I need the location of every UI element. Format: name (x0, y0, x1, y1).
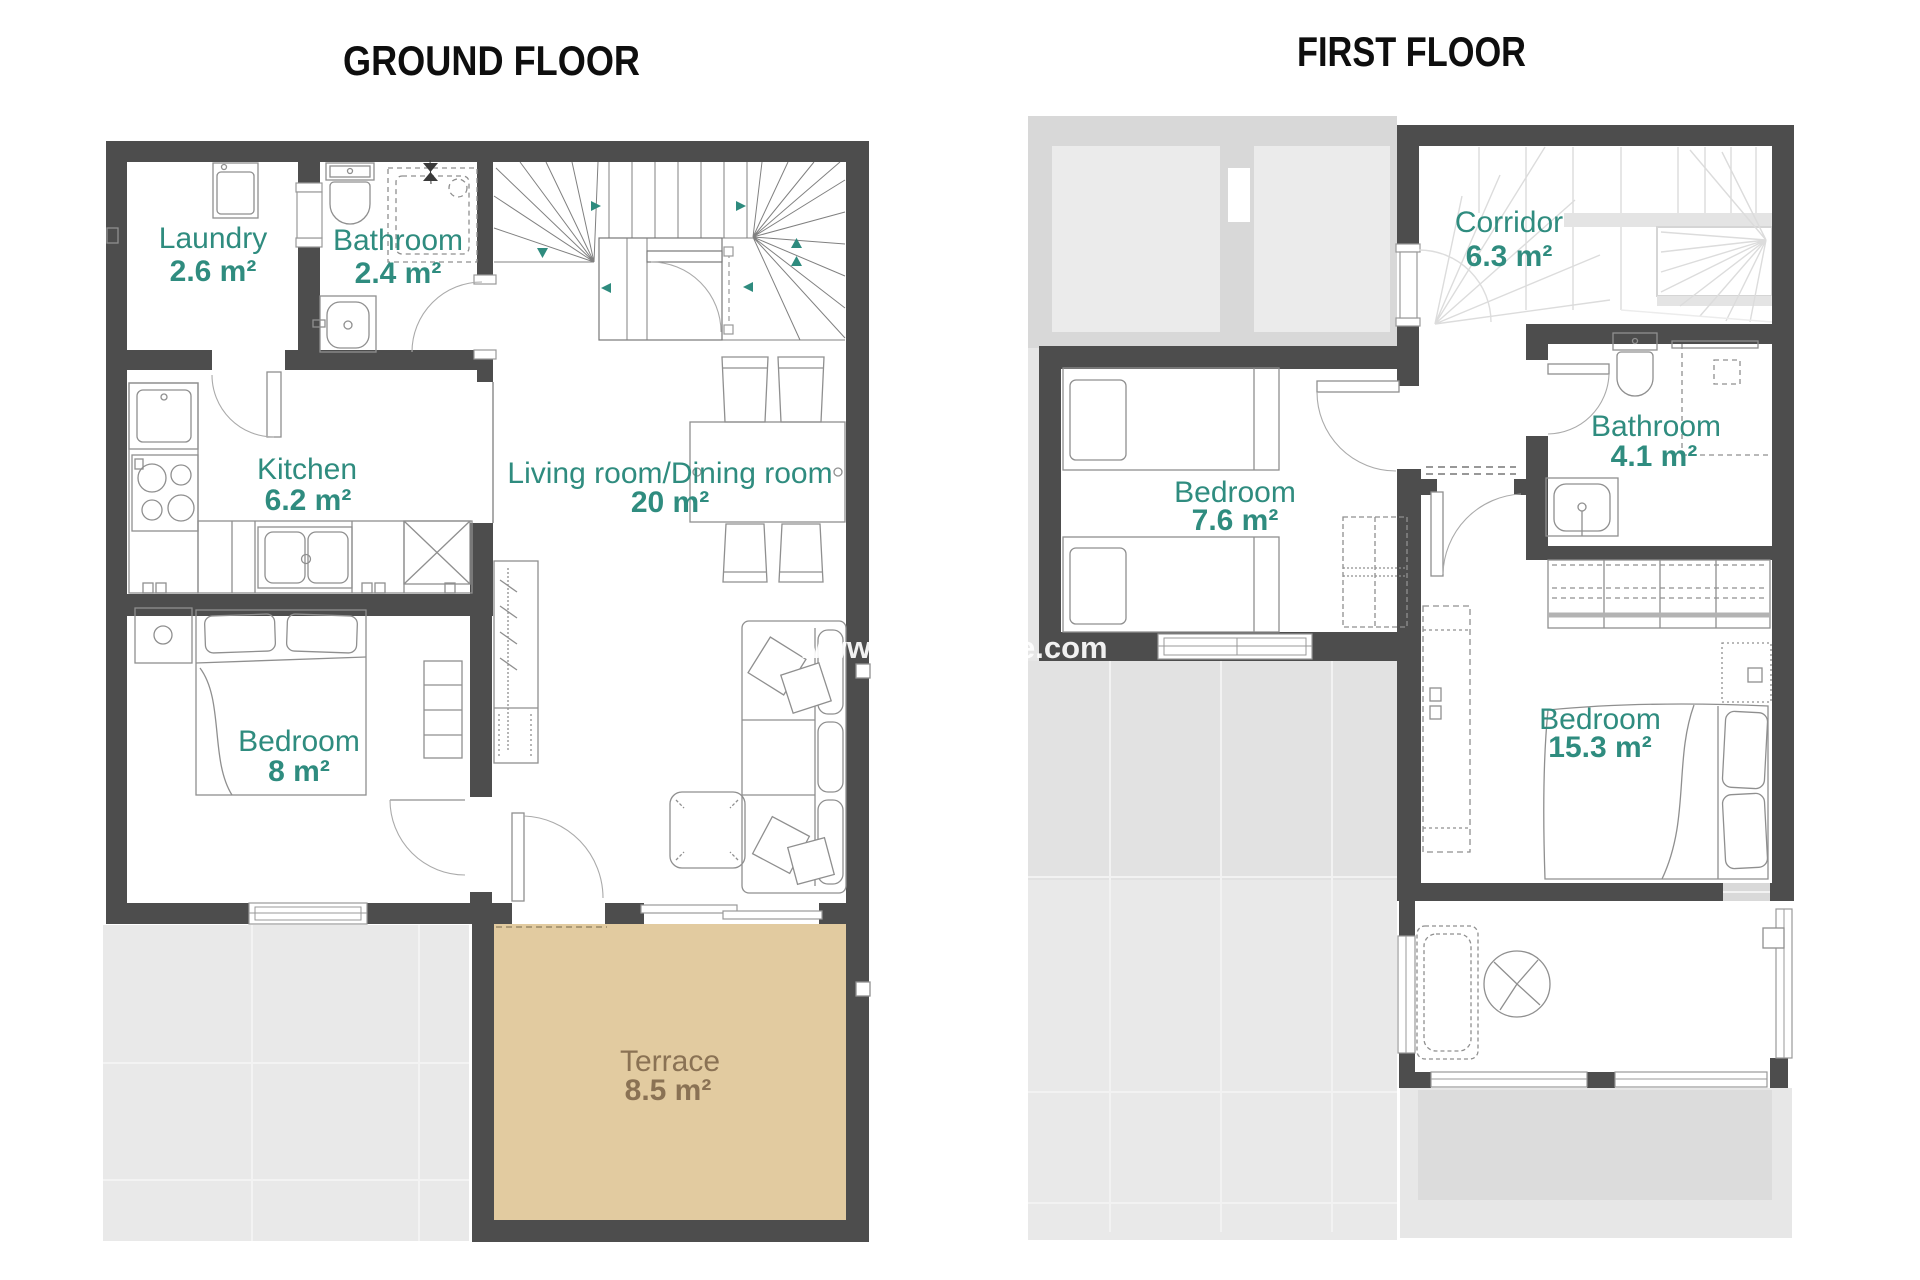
svg-text:Bathroom: Bathroom (1591, 410, 1721, 443)
svg-text:15.3 m²: 15.3 m² (1548, 731, 1651, 764)
svg-text:FIRST FLOOR: FIRST FLOOR (1297, 28, 1526, 75)
svg-text:6.3 m²: 6.3 m² (1466, 240, 1553, 273)
svg-text:7.6 m²: 7.6 m² (1192, 504, 1279, 537)
svg-text:2.6 m²: 2.6 m² (170, 255, 257, 288)
svg-text:Laundry: Laundry (159, 222, 267, 255)
svg-text:GROUND FLOOR: GROUND FLOOR (343, 37, 640, 84)
svg-text:e.com: e.com (1018, 630, 1108, 665)
svg-text:8.5 m²: 8.5 m² (625, 1074, 712, 1107)
svg-text:Bathroom: Bathroom (333, 224, 463, 257)
svg-text:Kitchen: Kitchen (257, 453, 357, 486)
svg-text:2.4 m²: 2.4 m² (355, 257, 442, 290)
svg-text:Bedroom: Bedroom (238, 725, 360, 758)
svg-text:8 m²: 8 m² (268, 755, 330, 788)
svg-text:Corridor: Corridor (1455, 206, 1563, 239)
svg-text:20 m²: 20 m² (631, 486, 709, 519)
svg-text:www: www (798, 630, 872, 665)
svg-text:4.1 m²: 4.1 m² (1611, 440, 1698, 473)
svg-text:6.2 m²: 6.2 m² (265, 484, 352, 517)
